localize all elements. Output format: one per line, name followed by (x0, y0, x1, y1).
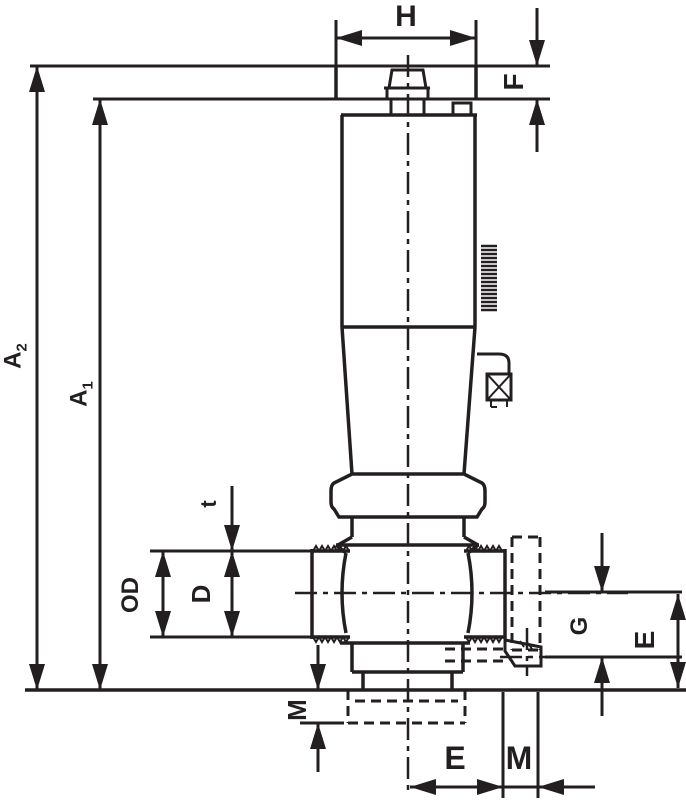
dim-label-a2: A2 (2, 343, 31, 369)
dim-label-f: F (500, 73, 528, 90)
dimension-arrowheads (29, 30, 686, 795)
dim-label-a1: A1 (68, 381, 97, 407)
dim-label-e-bottom: E (444, 742, 465, 774)
handle-clip-detail (477, 354, 511, 407)
dim-label-d: D (188, 585, 214, 604)
valve-dimension-drawing (0, 0, 686, 800)
dim-label-t: t (198, 500, 220, 507)
dim-label-m-bottom: M (506, 742, 533, 774)
dim-label-od: OD (119, 577, 143, 613)
stamp-marking (481, 246, 497, 310)
dim-label-h: H (395, 2, 417, 32)
dimension-lines (37, 8, 678, 787)
dim-label-g: G (568, 617, 592, 636)
dim-label-m-left: M (284, 699, 310, 721)
hidden-lines (348, 537, 540, 723)
extension-lines (30, 20, 682, 798)
dim-label-e-right: E (631, 631, 659, 650)
drawing-canvas: H F A2 A1 t OD D G E M E M (0, 0, 686, 800)
centerlines (295, 55, 628, 795)
